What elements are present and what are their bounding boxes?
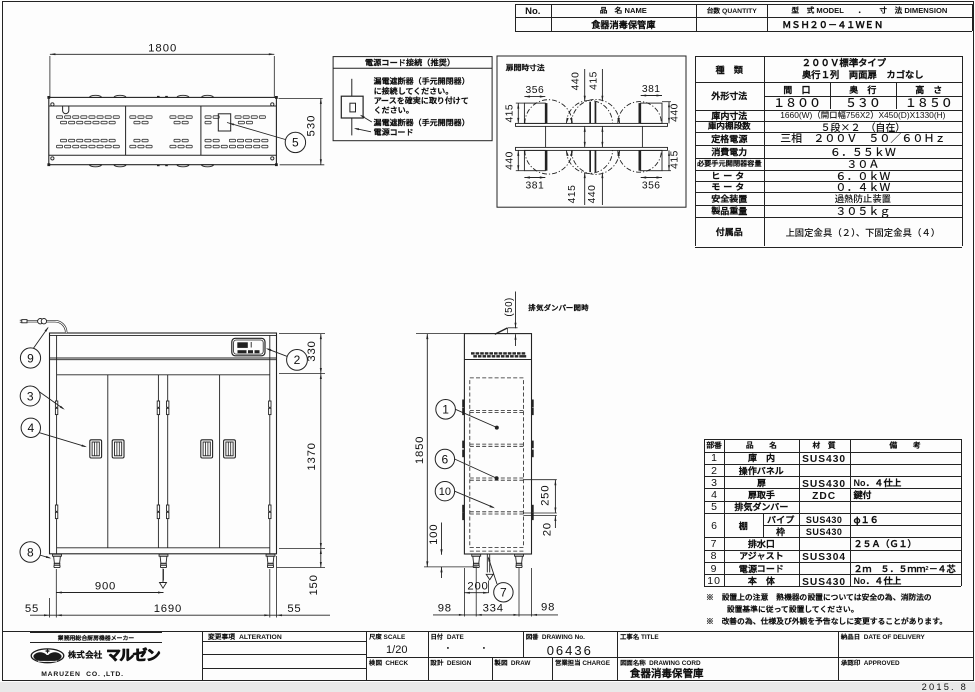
svg-text:(50): (50) (504, 297, 515, 316)
svg-text:415: 415 (567, 185, 578, 204)
svg-text:200: 200 (467, 581, 488, 593)
svg-text:1850: 1850 (414, 436, 426, 464)
svg-text:6: 6 (442, 452, 449, 466)
svg-text:381: 381 (526, 181, 545, 192)
svg-text:330: 330 (306, 340, 318, 361)
svg-text:440: 440 (670, 103, 681, 122)
svg-text:扉開時寸法: 扉開時寸法 (505, 63, 545, 74)
svg-text:3: 3 (27, 389, 34, 403)
svg-text:440: 440 (505, 151, 516, 170)
svg-text:10: 10 (439, 486, 451, 498)
svg-text:150: 150 (308, 574, 320, 595)
svg-text:1: 1 (442, 403, 449, 417)
svg-text:4: 4 (27, 421, 34, 435)
svg-text:381: 381 (642, 84, 661, 95)
svg-text:415: 415 (505, 104, 516, 123)
svg-text:55: 55 (287, 603, 301, 615)
svg-text:8: 8 (27, 545, 34, 559)
svg-text:2: 2 (294, 353, 301, 367)
svg-text:1800: 1800 (148, 43, 177, 55)
svg-text:1690: 1690 (154, 603, 182, 615)
svg-text:415: 415 (589, 71, 600, 90)
svg-text:440: 440 (587, 185, 598, 204)
svg-text:7: 7 (500, 586, 507, 600)
svg-text:ください。: ください。 (374, 105, 414, 116)
svg-text:55: 55 (25, 603, 39, 615)
svg-text:356: 356 (642, 181, 661, 192)
svg-text:98: 98 (541, 602, 555, 614)
svg-text:電源コード接続（推奨）: 電源コード接続（推奨） (365, 56, 455, 68)
svg-text:250: 250 (540, 485, 552, 506)
svg-text:98: 98 (438, 603, 452, 615)
svg-text:100: 100 (428, 524, 440, 545)
svg-text:415: 415 (670, 150, 681, 169)
svg-text:1370: 1370 (306, 442, 318, 470)
svg-text:900: 900 (95, 580, 116, 592)
svg-text:356: 356 (526, 85, 545, 96)
svg-text:9: 9 (27, 351, 34, 365)
svg-text:排気ダンパー開時: 排気ダンパー開時 (528, 303, 589, 314)
svg-text:20: 20 (542, 522, 554, 536)
svg-text:電源コード: 電源コード (374, 127, 414, 138)
svg-text:440: 440 (571, 72, 582, 91)
svg-text:530: 530 (306, 115, 318, 137)
svg-text:334: 334 (483, 603, 504, 615)
svg-text:5: 5 (292, 136, 299, 150)
